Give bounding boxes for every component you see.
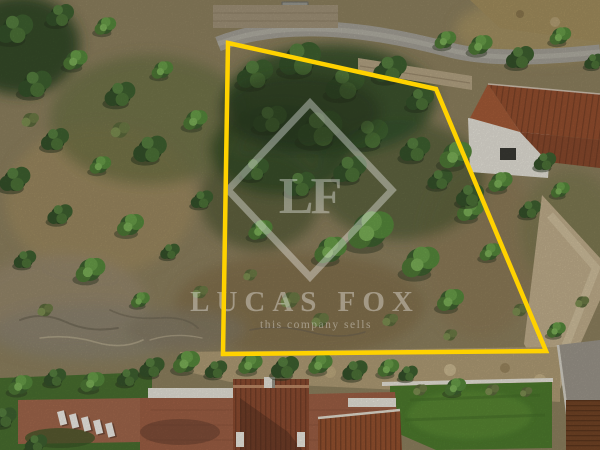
- photo-grain-overlay: [0, 0, 600, 450]
- aerial-photo: LF LUCAS FOX this company sells: [0, 0, 600, 450]
- aerial-photo-canvas: LF LUCAS FOX this company sells: [0, 0, 600, 450]
- watermark-tagline: this company sells: [260, 319, 372, 331]
- watermark-monogram: LF: [279, 168, 341, 225]
